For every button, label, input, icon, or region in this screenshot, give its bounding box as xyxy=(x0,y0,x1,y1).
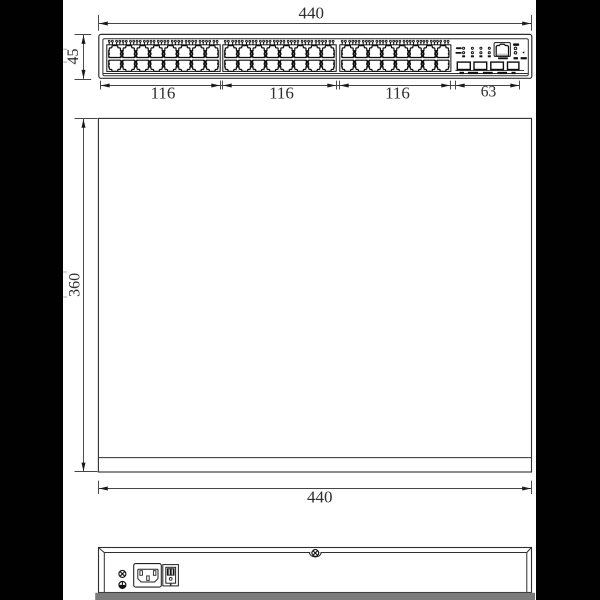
svg-text:440: 440 xyxy=(307,488,333,507)
svg-text:116: 116 xyxy=(151,83,176,102)
svg-text:116: 116 xyxy=(269,83,294,102)
svg-text:45: 45 xyxy=(65,49,82,65)
svg-text:63: 63 xyxy=(481,83,497,100)
svg-text:116: 116 xyxy=(385,83,410,102)
svg-text:360: 360 xyxy=(67,273,84,297)
svg-text:440: 440 xyxy=(299,3,325,22)
